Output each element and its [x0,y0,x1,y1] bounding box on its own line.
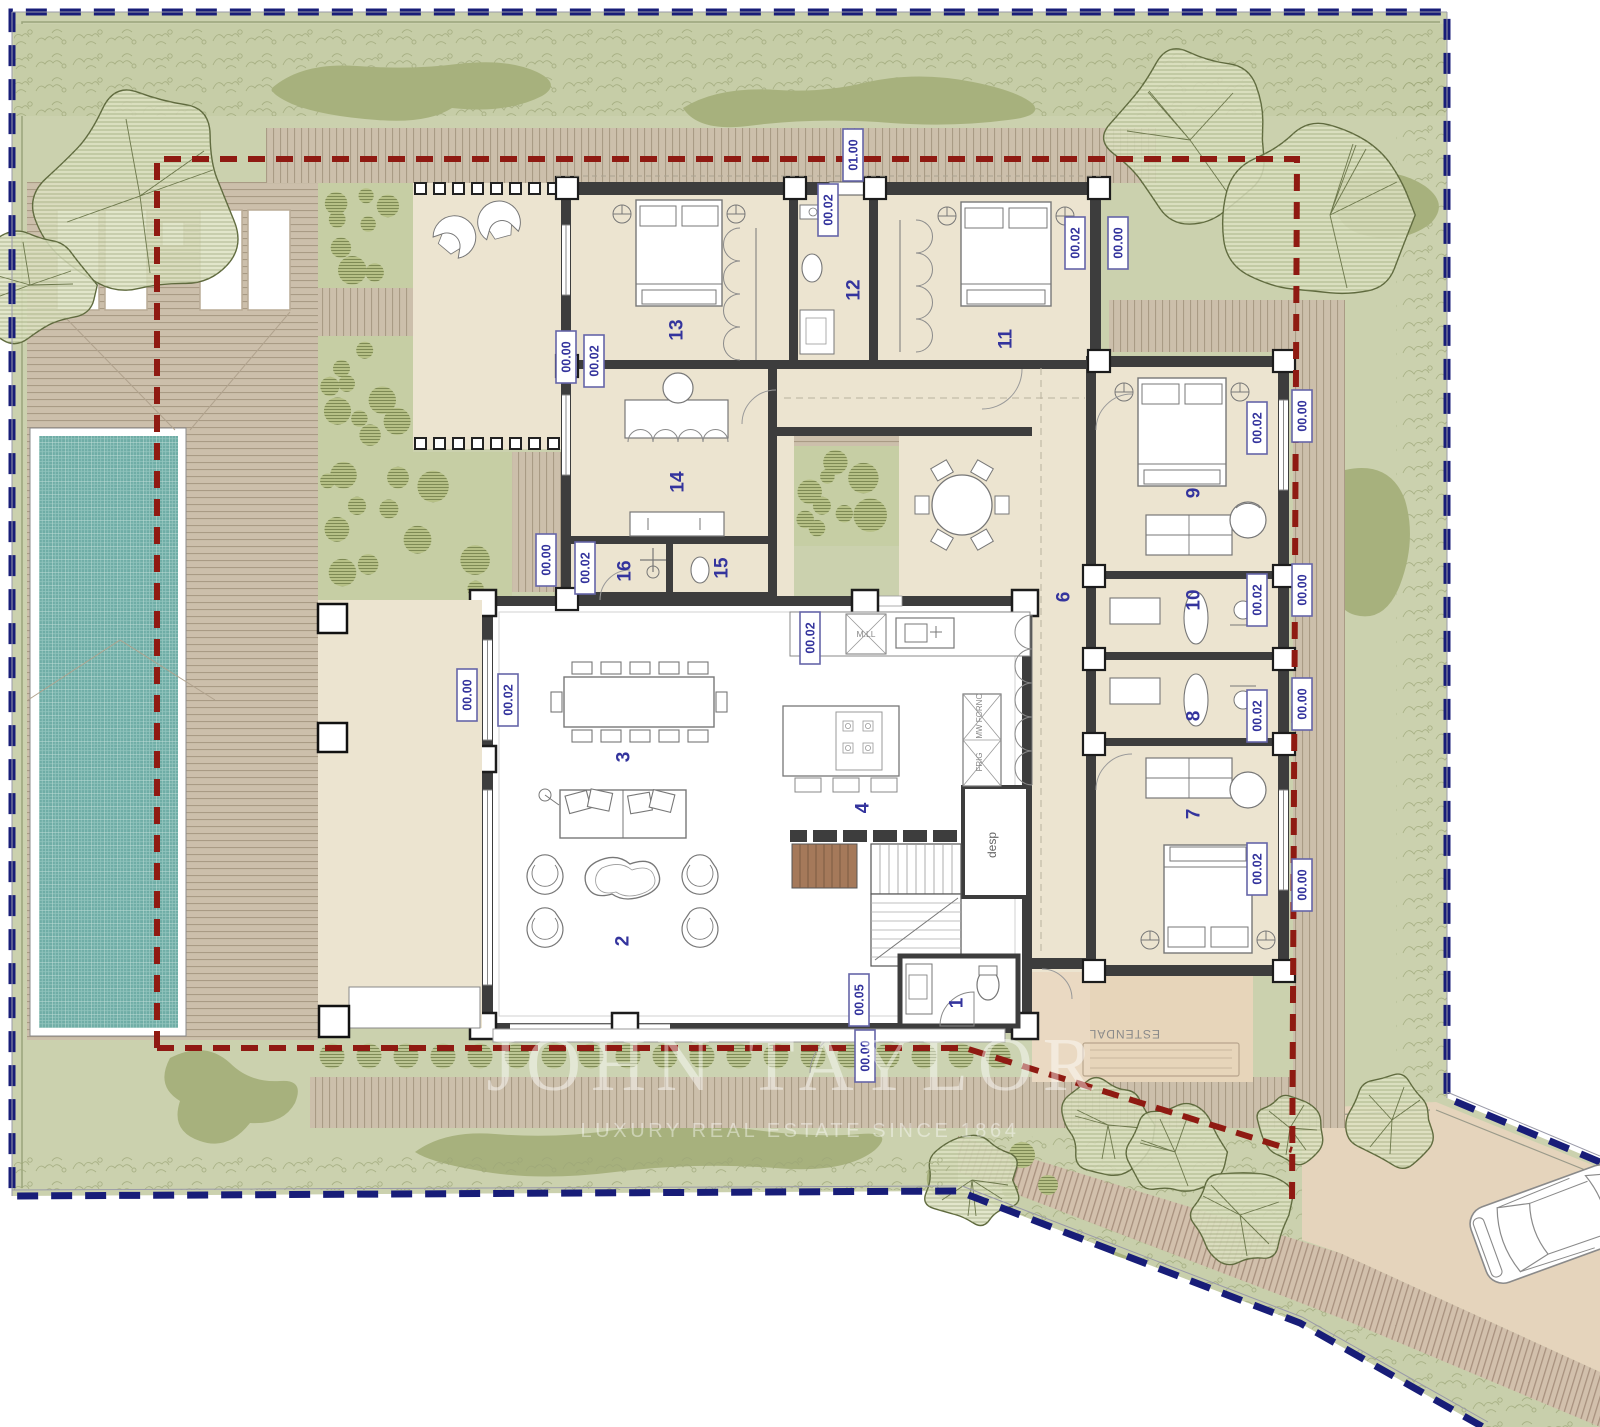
svg-text:00.02: 00.02 [1251,584,1265,615]
svg-text:12: 12 [844,279,865,300]
svg-text:3: 3 [614,752,635,763]
svg-text:00.02: 00.02 [1251,853,1265,884]
svg-text:00.00: 00.00 [461,679,475,710]
svg-text:00.05: 00.05 [853,984,867,1015]
svg-text:00.02: 00.02 [579,552,593,583]
svg-text:00.02: 00.02 [502,684,516,715]
svg-text:11: 11 [996,329,1017,350]
svg-text:M.LL: M.LL [857,629,876,639]
svg-text:2: 2 [613,936,634,947]
svg-text:01.00: 01.00 [847,139,861,170]
svg-text:10: 10 [1184,589,1205,610]
svg-text:FRIG: FRIG [975,752,984,771]
svg-text:00.02: 00.02 [1251,412,1265,443]
svg-text:15: 15 [712,557,733,579]
svg-text:00.00: 00.00 [1296,400,1310,431]
svg-text:00.02: 00.02 [804,622,818,653]
svg-text:00.00: 00.00 [560,341,574,372]
svg-text:00.00: 00.00 [1112,227,1126,258]
svg-text:6: 6 [1054,592,1075,603]
svg-text:9: 9 [1184,488,1205,499]
svg-text:13: 13 [667,319,688,340]
svg-text:00.02: 00.02 [1251,700,1265,731]
svg-text:00.00: 00.00 [1296,869,1310,900]
svg-text:MW FORNO: MW FORNO [975,693,984,738]
svg-text:16: 16 [615,560,636,581]
svg-text:00.00: 00.00 [1296,574,1310,605]
svg-text:JOHN TAYLOR: JOHN TAYLOR [487,1023,1104,1107]
svg-text:LUXURY REAL ESTATE SINCE 1864: LUXURY REAL ESTATE SINCE 1864 [581,1120,1020,1142]
svg-text:00.02: 00.02 [1069,227,1083,258]
svg-text:00.02: 00.02 [588,345,602,376]
svg-text:14: 14 [668,471,689,493]
svg-text:00.02: 00.02 [822,194,836,225]
svg-text:1: 1 [947,997,968,1008]
svg-text:desp: desp [985,832,999,858]
svg-text:4: 4 [853,802,874,813]
svg-text:00.00: 00.00 [1296,688,1310,719]
svg-text:8: 8 [1184,711,1205,722]
svg-text:7: 7 [1184,809,1205,820]
svg-text:00.00: 00.00 [540,544,554,575]
